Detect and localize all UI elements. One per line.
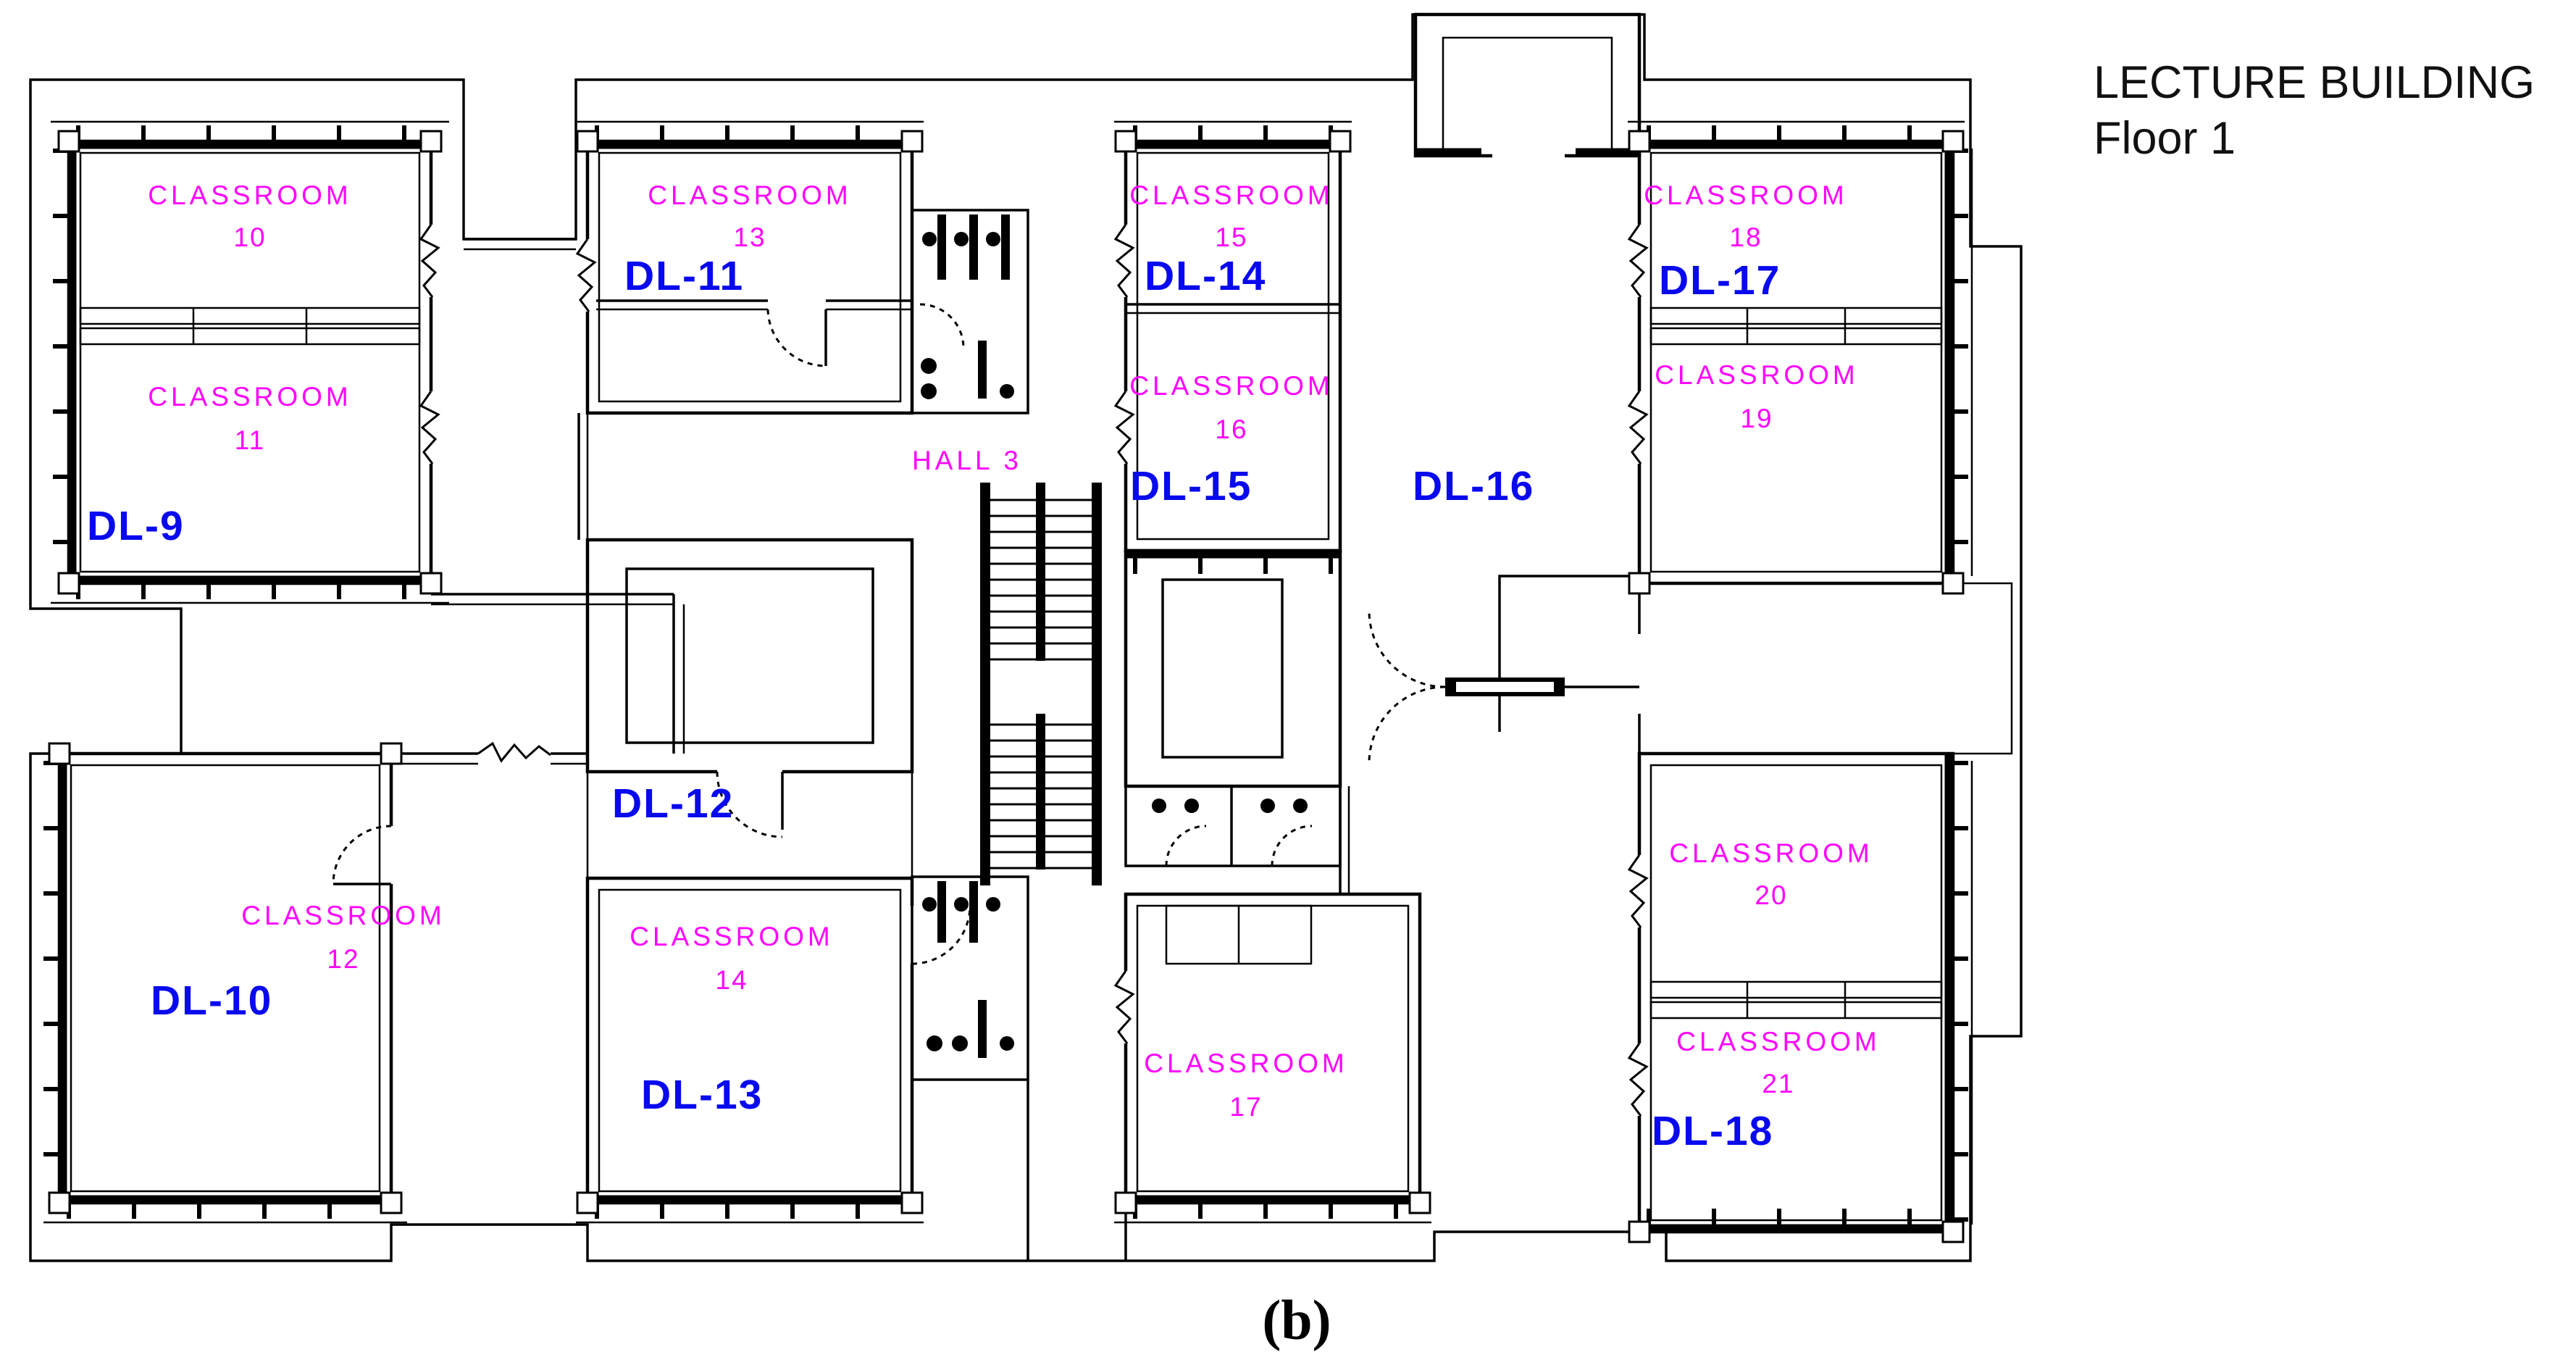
column-marker xyxy=(421,573,441,593)
figure-caption: (b) xyxy=(1262,1288,1331,1351)
room-number-13: 13 xyxy=(733,222,766,252)
column-marker xyxy=(1943,573,1963,593)
room-dl15-hall xyxy=(1126,551,1340,786)
stair-treads xyxy=(1045,500,1092,659)
wall xyxy=(1126,786,1340,866)
wall xyxy=(1126,551,1340,786)
toilet-icon xyxy=(1260,799,1275,813)
room-number-18: 18 xyxy=(1729,222,1762,252)
door-swing-arc xyxy=(1166,826,1206,866)
wall xyxy=(587,540,912,772)
toilet-icon xyxy=(954,897,969,912)
column-marker xyxy=(59,131,79,151)
restroom-upper xyxy=(912,210,1028,413)
column-marker xyxy=(1943,1222,1963,1242)
room-number-20: 20 xyxy=(1755,880,1787,910)
dl-label-16: DL-16 xyxy=(1413,463,1534,509)
column-marker xyxy=(381,1193,401,1213)
column-marker xyxy=(49,1193,70,1213)
stall-wall xyxy=(969,881,978,943)
drawing-title: LECTURE BUILDING Floor 1 xyxy=(2094,57,2535,164)
vestibule-wall xyxy=(1500,576,1639,732)
room-number-17: 17 xyxy=(1229,1092,1262,1122)
column-marker xyxy=(1410,1193,1430,1213)
room-label-classroom-14: CLASSROOM xyxy=(630,922,833,951)
room-number-11: 11 xyxy=(235,425,265,455)
stair-treads xyxy=(990,725,1036,868)
stall-wall xyxy=(978,1000,987,1058)
room-number-14: 14 xyxy=(715,965,748,995)
room-number-10: 10 xyxy=(233,222,266,252)
floor-plan-canvas: CLASSROOM 10 CLASSROOM 11 DL-9 CLASSROOM… xyxy=(0,0,2576,1355)
stall-wall xyxy=(978,341,987,399)
column-marker xyxy=(49,743,70,764)
sink-icon xyxy=(921,383,937,399)
toilet-icon xyxy=(1000,384,1014,399)
dl-label-10: DL-10 xyxy=(151,977,272,1024)
stair-divider-wall xyxy=(1036,483,1045,661)
partition-row xyxy=(80,328,419,344)
column-marker xyxy=(577,131,598,151)
stair-treads xyxy=(990,500,1036,659)
stall-wall xyxy=(937,214,946,280)
column-marker xyxy=(1116,1193,1136,1213)
title-line-1: LECTURE BUILDING xyxy=(2094,57,2535,108)
partition-band xyxy=(1651,308,1941,344)
column-marker xyxy=(1116,131,1136,151)
entrance-vestibule-right xyxy=(1369,576,2012,763)
dl-label-18: DL-18 xyxy=(1652,1108,1773,1154)
column-marker xyxy=(1629,573,1649,593)
door-swing-arc xyxy=(1369,611,1445,687)
room-label-classroom-21: CLASSROOM xyxy=(1676,1027,1880,1056)
room-label-classroom-20: CLASSROOM xyxy=(1669,838,1873,868)
dl-label-12: DL-12 xyxy=(612,780,734,827)
double-door-slot xyxy=(1456,682,1554,692)
room-label-classroom-15: CLASSROOM xyxy=(1129,180,1333,210)
entrance-vestibule-top xyxy=(1415,14,1639,164)
room-label-classroom-10: CLASSROOM xyxy=(148,180,351,210)
door-swing-arc xyxy=(920,304,963,348)
toilet-icon xyxy=(922,897,937,912)
partition-band xyxy=(1651,982,1941,1018)
column-marker xyxy=(59,573,79,593)
wall xyxy=(1415,14,1639,156)
room-number-12: 12 xyxy=(327,944,359,974)
stall-wall xyxy=(1001,214,1010,280)
door-gap xyxy=(478,745,551,772)
dl-label-17: DL-17 xyxy=(1659,257,1781,304)
partition-row xyxy=(1651,308,1941,324)
door-swing-arc xyxy=(1272,826,1312,866)
entry-alcove xyxy=(1953,583,2012,754)
dl-label-13: DL-13 xyxy=(641,1072,763,1118)
room-label-classroom-17: CLASSROOM xyxy=(1144,1048,1347,1078)
room-label-classroom-19: CLASSROOM xyxy=(1655,360,1858,390)
dl-label-11: DL-11 xyxy=(624,253,744,299)
column-marker xyxy=(577,1193,598,1213)
partition-row xyxy=(1651,1002,1941,1018)
column-marker xyxy=(902,1193,922,1213)
column-marker xyxy=(381,743,401,764)
sink-icon xyxy=(927,1035,942,1051)
partition-row xyxy=(80,308,419,324)
dl-label-15: DL-15 xyxy=(1130,463,1252,509)
column-marker xyxy=(1629,131,1649,151)
toilet-icon xyxy=(922,232,937,246)
partition-row xyxy=(1651,328,1941,344)
room-label-classroom-18: CLASSROOM xyxy=(1644,180,1847,210)
toilet-icon xyxy=(1152,799,1166,813)
wing-classrooms-20-21 xyxy=(1629,754,1972,1232)
room-number-16: 16 xyxy=(1215,414,1247,444)
stair-wall xyxy=(980,483,990,885)
column-marker xyxy=(902,131,922,151)
column-marker xyxy=(1943,131,1963,151)
wall-inner xyxy=(1443,38,1612,156)
partition-row xyxy=(1651,982,1941,998)
title-line-2: Floor 1 xyxy=(2094,113,2236,164)
wall xyxy=(1639,754,1953,1232)
hall-label: HALL 3 xyxy=(912,446,1022,475)
room-number-15: 15 xyxy=(1215,222,1247,252)
stall-wall xyxy=(937,881,946,943)
stair-treads xyxy=(1045,725,1092,868)
room-label-classroom-11: CLASSROOM xyxy=(148,382,351,412)
stair-divider-wall xyxy=(1036,714,1045,870)
column-marker xyxy=(1330,131,1350,151)
dl-label-9: DL-9 xyxy=(87,503,185,549)
inner-platform xyxy=(1163,580,1282,757)
room-number-19: 19 xyxy=(1740,404,1773,433)
restroom-lower xyxy=(912,877,1028,1080)
entry-closet xyxy=(1166,906,1311,964)
toilet-icon xyxy=(954,232,969,246)
stairwell xyxy=(980,483,1102,885)
room-dl12 xyxy=(587,540,912,878)
toilet-icon xyxy=(1184,799,1199,813)
sink-icon xyxy=(921,358,937,374)
room-number-21: 21 xyxy=(1762,1069,1794,1098)
partition-band xyxy=(80,308,419,344)
stair-wall xyxy=(1092,483,1102,885)
restroom-center xyxy=(1126,786,1340,866)
stall-wall xyxy=(969,214,978,280)
toilet-icon xyxy=(1000,1036,1014,1051)
door-gap xyxy=(717,763,782,780)
door-gap xyxy=(1492,149,1565,164)
sink-icon xyxy=(952,1035,968,1051)
door-swing-arc xyxy=(1369,687,1445,763)
room-label-classroom-13: CLASSROOM xyxy=(648,180,851,210)
toilet-icon xyxy=(1293,799,1308,813)
toilet-icon xyxy=(986,897,1000,912)
door-swing-arc xyxy=(768,309,826,366)
column-marker xyxy=(1629,1222,1649,1242)
room-label-classroom-16: CLASSROOM xyxy=(1129,371,1333,401)
room-label-classroom-12: CLASSROOM xyxy=(241,901,445,930)
dl-label-14: DL-14 xyxy=(1145,253,1266,299)
toilet-icon xyxy=(986,232,1000,246)
door-gap xyxy=(382,826,400,884)
column-marker xyxy=(421,131,441,151)
